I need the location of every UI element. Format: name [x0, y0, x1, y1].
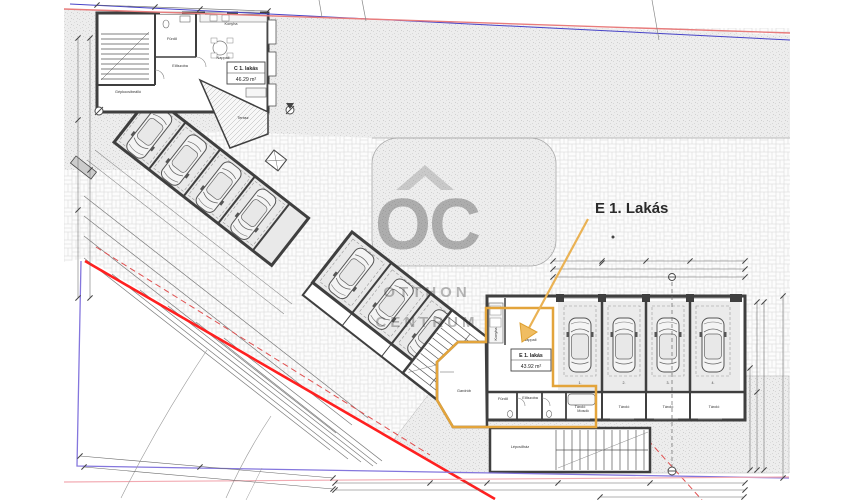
room-label-gardrob: Gardrób	[457, 389, 471, 393]
svg-text:E 1. lakás: E 1. lakás	[519, 353, 543, 359]
room-label-eloszoba-e1: Előszoba	[522, 396, 539, 400]
svg-text:43.92 m²: 43.92 m²	[521, 364, 542, 370]
stair-hall-lower: Lépcsőház	[490, 428, 650, 472]
unit-label-c1: C 1. lakás 46.29 m²	[227, 62, 265, 84]
watermark-mark: OC	[375, 185, 480, 265]
room-label-tarolo: Tároló	[709, 405, 720, 409]
watermark-line1: OTTHON	[383, 284, 470, 301]
room-label-konyha: Konyha	[225, 22, 239, 26]
car-icon	[655, 318, 682, 372]
bay-number-3: 3.	[667, 381, 670, 385]
car-icon	[567, 318, 594, 372]
room-label-nappali: Nappali	[217, 56, 230, 60]
room-label-eloszoba: Előszoba	[172, 64, 189, 68]
toilet-icon	[507, 411, 512, 418]
toilet-icon	[546, 411, 551, 418]
car-icon	[700, 318, 727, 372]
bay-number-1: 1.	[579, 381, 582, 385]
bathtub-icon	[568, 394, 595, 405]
room-label-tarolo: Tároló	[619, 405, 630, 409]
car-icon	[611, 318, 638, 372]
bay-number-2: 2.	[623, 381, 626, 385]
toilet-icon	[163, 20, 169, 28]
unit-label-e1: E 1. lakás 43.92 m²	[511, 349, 551, 371]
watermark-line2: CENTRUM	[376, 314, 479, 331]
callout-label: E 1. Lakás	[595, 200, 668, 217]
room-label-gepkocsibeallo: Gépkocsibeálló	[115, 90, 141, 94]
room-label-mosdo-e1: Mosdó	[577, 409, 588, 413]
bay-number-4: 4.	[712, 381, 715, 385]
upper-building: Fürdő Konyha Előszoba Nappali Gépkocsibe…	[97, 12, 276, 113]
svg-text:C 1. lakás: C 1. lakás	[234, 66, 258, 72]
sofa-icon	[246, 88, 266, 97]
svg-text:46.29 m²: 46.29 m²	[236, 77, 257, 83]
room-label-furdo-e1: Fürdő	[498, 397, 508, 401]
sink-icon	[180, 16, 190, 22]
floor-plan-page: Fürdő Konyha Előszoba Nappali Gépkocsibe…	[0, 0, 853, 500]
lower-building: 1. 2. 3. 4. Tároló Tároló Tároló Tároló …	[487, 294, 745, 420]
room-label-furdo: Fürdő	[167, 37, 177, 41]
room-label-terasz: Terasz	[237, 116, 248, 120]
floor-plan-canvas: Fürdő Konyha Előszoba Nappali Gépkocsibe…	[0, 0, 853, 500]
room-label-lepcsohaz: Lépcsőház	[511, 445, 529, 449]
room-label-konyha-e1: Konyha	[494, 327, 498, 341]
